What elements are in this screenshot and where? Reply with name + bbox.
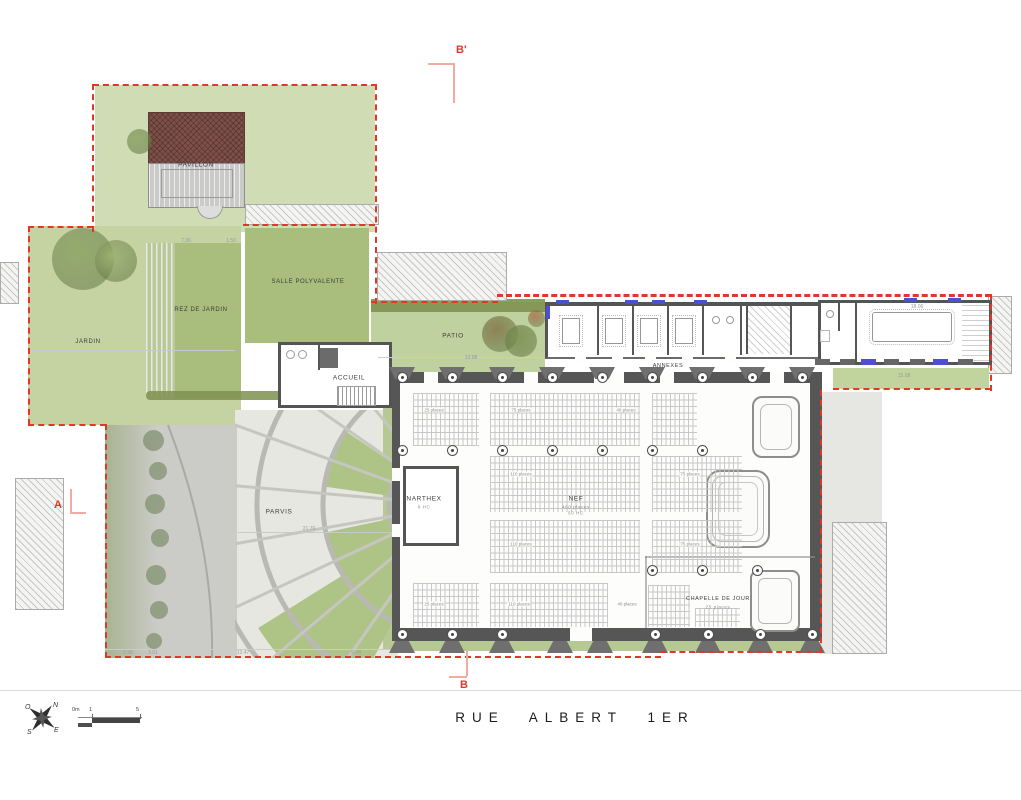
column (597, 445, 608, 456)
site-plan-canvas: N O E S PAVILLONSALLE POLYVALENTEREZ DE … (0, 0, 1021, 800)
door-opening (682, 355, 693, 361)
dimension-label: 2.98 (123, 650, 133, 656)
property-boundary (28, 424, 106, 426)
column (650, 629, 661, 640)
room-label-accueil: ACCUEIL (333, 375, 365, 382)
column (547, 445, 558, 456)
column (747, 372, 758, 383)
property-boundary (105, 424, 107, 658)
pew-bank (490, 520, 640, 573)
property-boundary (93, 84, 377, 86)
section-b-prime-line-v (453, 63, 455, 103)
tree (528, 310, 545, 327)
window-marker (546, 306, 550, 319)
dimension-label: 13.47 (237, 650, 250, 656)
bench (958, 359, 973, 365)
door-opening (392, 468, 400, 481)
seat-count-label: 110 places (507, 602, 530, 607)
annex-partition (597, 306, 599, 355)
column (447, 445, 458, 456)
property-boundary (243, 224, 375, 226)
section-a-line-v (70, 489, 72, 513)
property-boundary (833, 388, 991, 390)
property-boundary (660, 651, 821, 653)
tree (127, 129, 152, 154)
room-label-pavillon: PAVILLON (178, 162, 214, 169)
seat-count-label: 75 places (510, 408, 531, 413)
column (647, 565, 658, 576)
pew-bank (413, 393, 479, 446)
property-boundary (497, 294, 991, 297)
bench (840, 359, 855, 365)
column (647, 445, 658, 456)
bench (815, 359, 830, 365)
annex-partition (632, 306, 634, 355)
buttress-cap (439, 641, 465, 653)
scale-bar-tick (140, 714, 141, 719)
tree (95, 240, 137, 282)
room-label-patio: PATIO (442, 333, 464, 340)
section-b-line-v (466, 651, 468, 676)
room-label-nef-places: 460 places (562, 505, 590, 510)
door-opening (770, 372, 784, 383)
bench (861, 359, 876, 365)
window-marker (948, 298, 961, 302)
column (397, 629, 408, 640)
street-line (0, 690, 1021, 691)
column (597, 372, 608, 383)
pew-bank (695, 608, 740, 627)
plan-detail-overlay: PAVILLONSALLE POLYVALENTEREZ DE JARDINJA… (0, 0, 1021, 800)
column (697, 445, 708, 456)
door-opening (570, 628, 592, 641)
tree (145, 494, 165, 514)
pew-bank (652, 393, 697, 446)
window-marker (904, 298, 917, 302)
property-boundary (371, 301, 498, 303)
section-b-line (449, 676, 467, 678)
annex-partition (790, 306, 792, 355)
dimension-label: 9.48 (351, 650, 361, 656)
room-label-chapelle-de-jour: CHAPELLE DE JOUR (686, 596, 750, 602)
pew-bank (652, 520, 742, 573)
door-opening (524, 372, 538, 383)
column (697, 565, 708, 576)
scale-bar-segment (92, 718, 140, 723)
column (397, 372, 408, 383)
tree (143, 430, 164, 451)
window-marker (694, 300, 707, 304)
section-b-prime-line (428, 63, 454, 65)
bench (933, 359, 948, 365)
room-label-narthex-sub: 8 HC (418, 505, 431, 510)
column (807, 629, 818, 640)
column (397, 445, 408, 456)
tree (505, 325, 537, 357)
seat-count-label: 25 places (423, 602, 444, 607)
seat-count-label: 40 places (615, 408, 636, 413)
seat-count-label: 75 places (679, 472, 700, 477)
dimension-label: 21.70 (303, 526, 316, 532)
bench (910, 359, 925, 365)
scale-one-label: 1 (89, 707, 92, 713)
column (647, 372, 658, 383)
meeting-table (675, 318, 693, 344)
dimension-label: 13.08 (465, 355, 478, 361)
pew-bank (652, 456, 742, 512)
door-opening (424, 372, 438, 383)
column (703, 629, 714, 640)
room-label-nef: NEF (569, 496, 584, 503)
buttress-cap (587, 641, 613, 653)
column (797, 372, 808, 383)
buttress-cap (547, 641, 573, 653)
annex-partition (702, 306, 704, 355)
section-a-line (70, 512, 86, 514)
tree (151, 529, 169, 547)
scale-zero-label: 0m (72, 707, 80, 713)
column (497, 372, 508, 383)
column (497, 445, 508, 456)
tree (146, 565, 166, 585)
section-marker-a: A (54, 499, 62, 511)
meeting-table (605, 318, 623, 344)
window-marker (652, 300, 665, 304)
column (547, 372, 558, 383)
street-name: RUE ALBERT 1ER (370, 710, 780, 725)
dimension-label: 7.36 (181, 238, 191, 244)
window-marker (625, 300, 638, 304)
pew-bank (648, 585, 690, 627)
dimension-label: 1.50 (226, 238, 236, 244)
door-opening (392, 524, 400, 537)
property-boundary (92, 84, 94, 232)
column (697, 372, 708, 383)
door-opening (725, 355, 736, 361)
annex-partition (740, 306, 742, 355)
tree (149, 462, 167, 480)
dimension-label: 18.06 (911, 304, 924, 310)
property-boundary (105, 656, 661, 658)
room-label-chapelle-places: 25 places (706, 605, 731, 610)
room-label-nef-hc: 50 HC (568, 511, 584, 516)
dimension-label: 3.01 (148, 650, 158, 656)
seat-count-label: 75 places (679, 542, 700, 547)
column (497, 629, 508, 640)
bench (884, 359, 899, 365)
column (447, 629, 458, 640)
property-boundary (820, 390, 822, 653)
window-marker (556, 300, 569, 304)
tree (150, 601, 168, 619)
door-opening (645, 355, 656, 361)
room-label-rez-de-jardin: REZ DE JARDIN (174, 307, 227, 313)
section-marker-b-prime: B' (456, 44, 467, 56)
buttress-cap (489, 641, 515, 653)
scale-five-label: 5 (136, 707, 139, 713)
room-label-annexes: ANNEXES (653, 363, 684, 369)
property-boundary (990, 294, 992, 391)
property-boundary (28, 226, 30, 425)
seat-count-label: 25 places (423, 408, 444, 413)
room-label-jardin: JARDIN (75, 339, 100, 345)
room-label-narthex: NARTHEX (406, 496, 441, 503)
pew-bank (490, 393, 640, 446)
meeting-table (562, 318, 580, 344)
buttress-cap (389, 641, 415, 653)
door-opening (612, 355, 623, 361)
seat-count-label: 40 places (616, 602, 637, 607)
tree (146, 633, 162, 649)
room-label-parvis: PARVIS (266, 509, 293, 516)
column (755, 629, 766, 640)
annex-partition (667, 306, 669, 355)
column (447, 372, 458, 383)
seat-count-label: 110 places (509, 542, 532, 547)
door-opening (575, 355, 586, 361)
dimension-label: 15.08 (898, 373, 911, 379)
property-boundary (375, 84, 377, 304)
meeting-table (640, 318, 658, 344)
room-label-salle-polyvalente: SALLE POLYVALENTE (271, 279, 344, 285)
property-boundary (28, 226, 93, 228)
column (752, 565, 763, 576)
seat-count-label: 110 places (509, 472, 532, 477)
door-opening (660, 372, 674, 383)
scale-bar-segment-zero (78, 723, 92, 727)
